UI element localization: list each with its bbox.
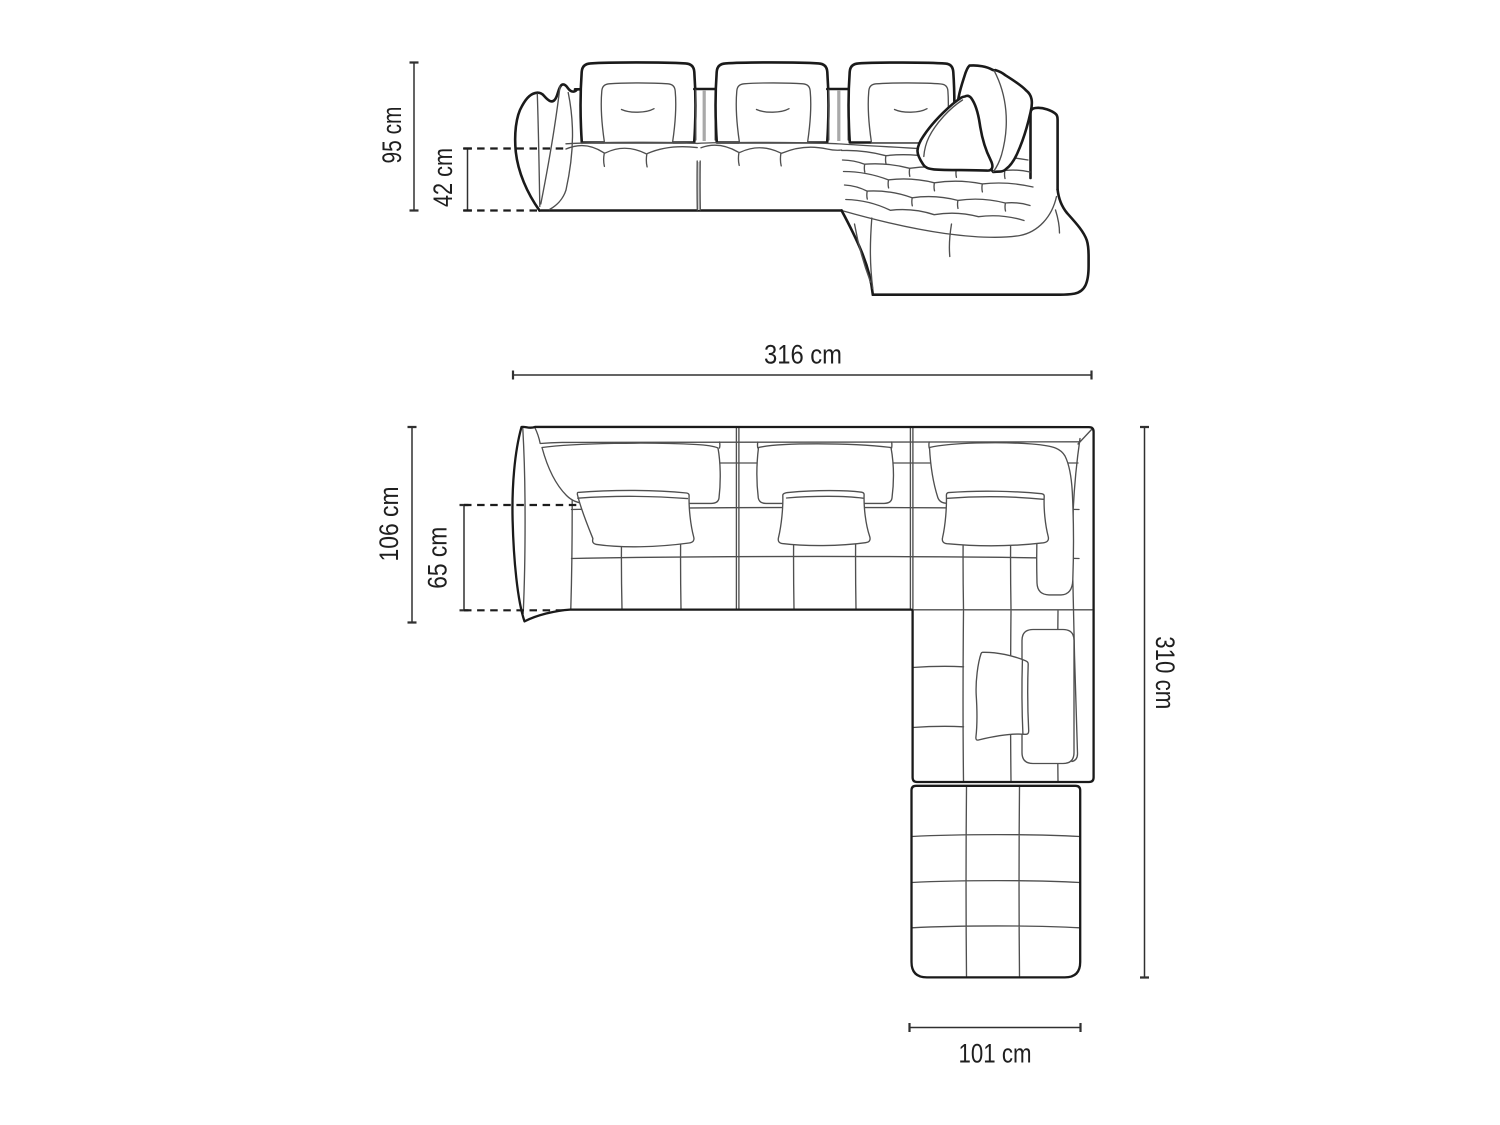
svg-text:101 cm: 101 cm: [959, 1039, 1032, 1069]
svg-text:42 cm: 42 cm: [428, 148, 458, 207]
svg-text:95 cm: 95 cm: [377, 107, 407, 164]
svg-text:65 cm: 65 cm: [423, 527, 453, 589]
svg-text:316 cm: 316 cm: [764, 340, 842, 370]
svg-text:310 cm: 310 cm: [1150, 636, 1180, 709]
svg-text:106 cm: 106 cm: [374, 487, 404, 562]
